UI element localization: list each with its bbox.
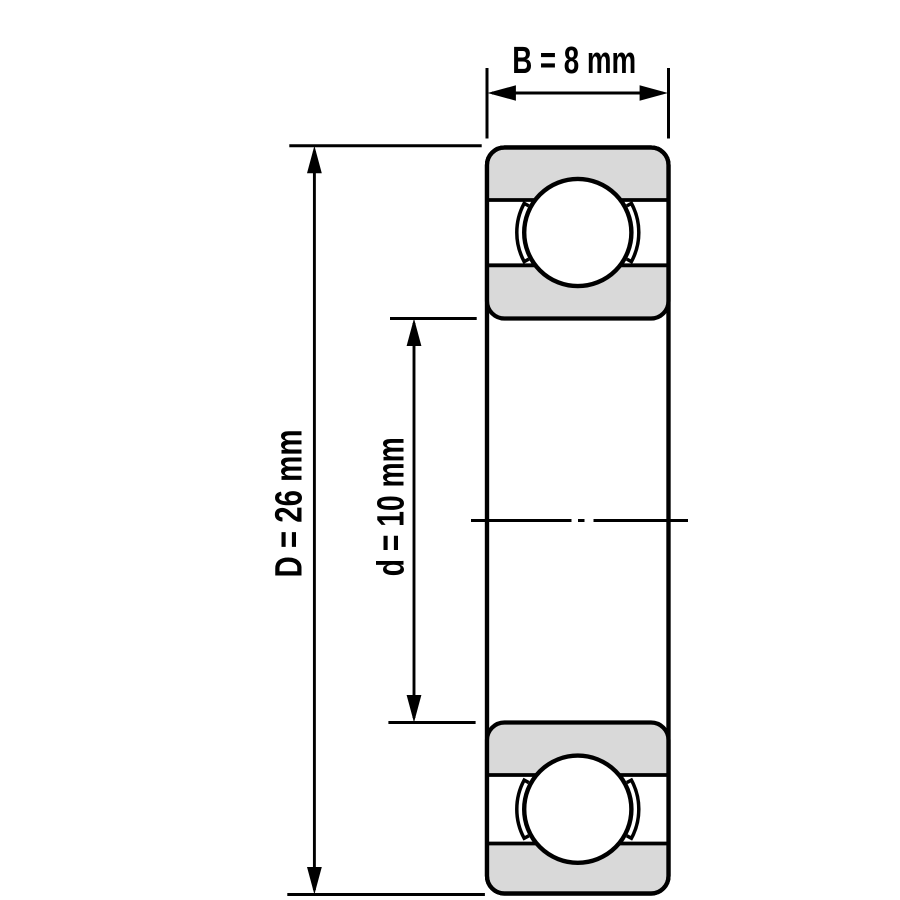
svg-text:B = 8 mm: B = 8 mm	[512, 40, 636, 82]
svg-text:d = 10 mm: d = 10 mm	[370, 437, 412, 576]
svg-text:D = 26 mm: D = 26 mm	[269, 430, 311, 578]
